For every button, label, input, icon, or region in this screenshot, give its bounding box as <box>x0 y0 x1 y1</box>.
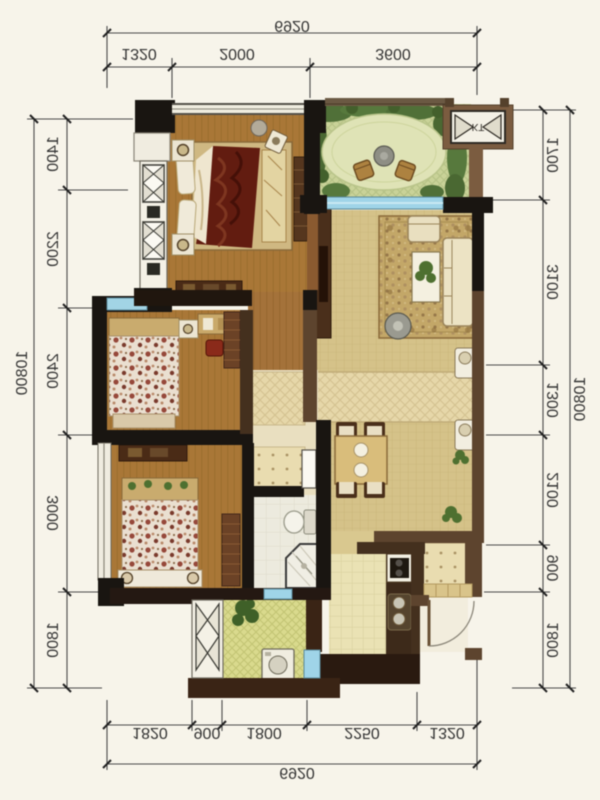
svg-text:3000: 3000 <box>45 495 62 531</box>
svg-text:900: 900 <box>545 555 562 582</box>
svg-text:1800: 1800 <box>545 622 562 658</box>
svg-text:3100: 3100 <box>545 264 562 300</box>
svg-text:10800: 10800 <box>14 351 31 396</box>
svg-text:1320: 1320 <box>429 724 465 741</box>
svg-text:2250: 2250 <box>344 724 380 741</box>
svg-text:KT: KT <box>472 121 485 132</box>
svg-text:6920: 6920 <box>279 764 315 781</box>
svg-text:2200: 2200 <box>45 231 62 267</box>
svg-text:1700: 1700 <box>545 137 562 173</box>
svg-text:10800: 10800 <box>572 377 589 422</box>
svg-text:1320: 1320 <box>121 45 157 62</box>
svg-text:2000: 2000 <box>219 45 255 62</box>
svg-text:2100: 2100 <box>545 472 562 508</box>
svg-text:1800: 1800 <box>246 724 282 741</box>
svg-text:1400: 1400 <box>45 136 62 172</box>
svg-text:1300: 1300 <box>545 382 562 418</box>
svg-text:3600: 3600 <box>375 45 411 62</box>
svg-text:6920: 6920 <box>274 17 310 34</box>
svg-text:900: 900 <box>194 724 221 741</box>
svg-text:1820: 1820 <box>132 724 168 741</box>
svg-text:1800: 1800 <box>45 622 62 658</box>
svg-text:2400: 2400 <box>45 353 62 389</box>
